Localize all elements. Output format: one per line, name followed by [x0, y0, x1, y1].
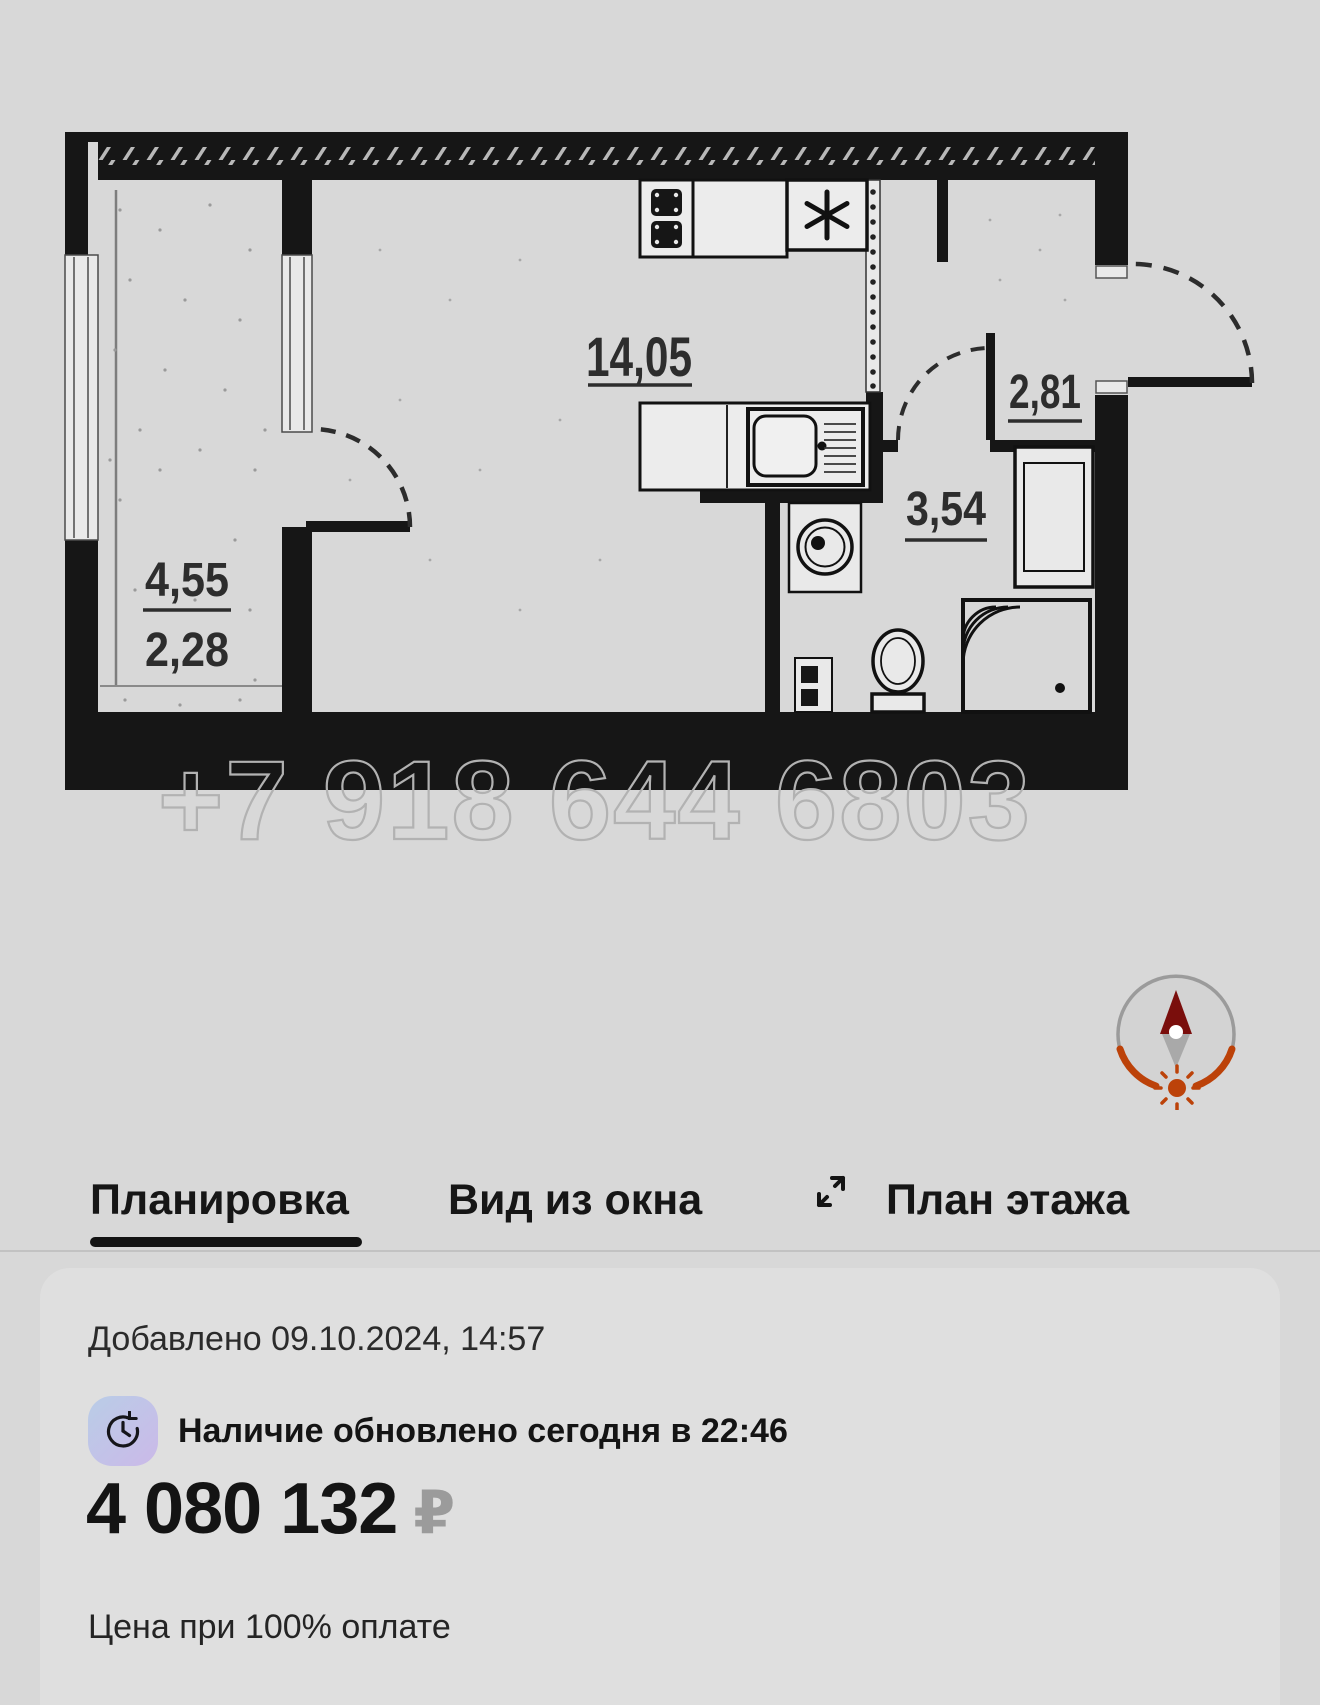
floor-plan-image[interactable]: 14,05 4,55 2,28 2,81 3,54: [0, 0, 1320, 850]
tab-vid-iz-okna[interactable]: Вид из окна: [448, 1176, 702, 1225]
tab-plan-etazha[interactable]: План этажа: [886, 1176, 1129, 1225]
price-value: 4 080 132: [86, 1468, 397, 1550]
price-note: Цена при 100% оплате: [88, 1608, 451, 1647]
kitchen-counter-sink: [640, 403, 870, 490]
shower: [963, 600, 1090, 712]
balcony-door: [306, 429, 410, 532]
bathroom-cabinet: [1015, 447, 1093, 587]
hall-area-label: 2,81: [1009, 366, 1081, 419]
bath-area-label: 3,54: [906, 483, 986, 536]
listing-screen: 14,05 4,55 2,28 2,81 3,54 +7 918 644 680…: [0, 0, 1320, 1705]
kitchen-counter-top: [693, 180, 787, 257]
phone-watermark: +7 918 644 6803: [0, 736, 1190, 865]
washing-machine: [789, 503, 861, 592]
added-date: Добавлено 09.10.2024, 14:57: [88, 1320, 545, 1359]
balcony-area-reduced-label: 2,28: [145, 624, 229, 677]
utility-shaft: [795, 658, 832, 712]
offer-card: Добавлено 09.10.2024, 14:57 Наличие обно…: [40, 1268, 1280, 1705]
compass-sun: [1155, 1066, 1199, 1110]
availability-row: Наличие обновлено сегодня в 22:46: [88, 1396, 788, 1466]
expand-icon[interactable]: [810, 1170, 854, 1214]
toilet: [872, 630, 924, 712]
ruble-sign: ₽: [413, 1478, 455, 1548]
entrance-door: [1096, 264, 1252, 393]
bathroom-door: [898, 333, 995, 440]
tabs-divider: [0, 1250, 1320, 1252]
window-balcony-partition: [282, 255, 312, 432]
plan-walls: [65, 132, 1128, 790]
price-row: 4 080 132 ₽: [86, 1468, 455, 1550]
room-area-label: 14,05: [586, 325, 692, 388]
clock-refresh-icon: [88, 1396, 158, 1466]
availability-text: Наличие обновлено сегодня в 22:46: [178, 1412, 788, 1451]
kitchen-fridge: [787, 180, 867, 250]
active-tab-underline: [90, 1237, 362, 1247]
tab-planirovka[interactable]: Планировка: [90, 1176, 349, 1225]
compass-icon: [1106, 960, 1246, 1110]
balcony-area-label: 4,55: [145, 554, 229, 607]
kitchen-stove: [640, 180, 693, 257]
